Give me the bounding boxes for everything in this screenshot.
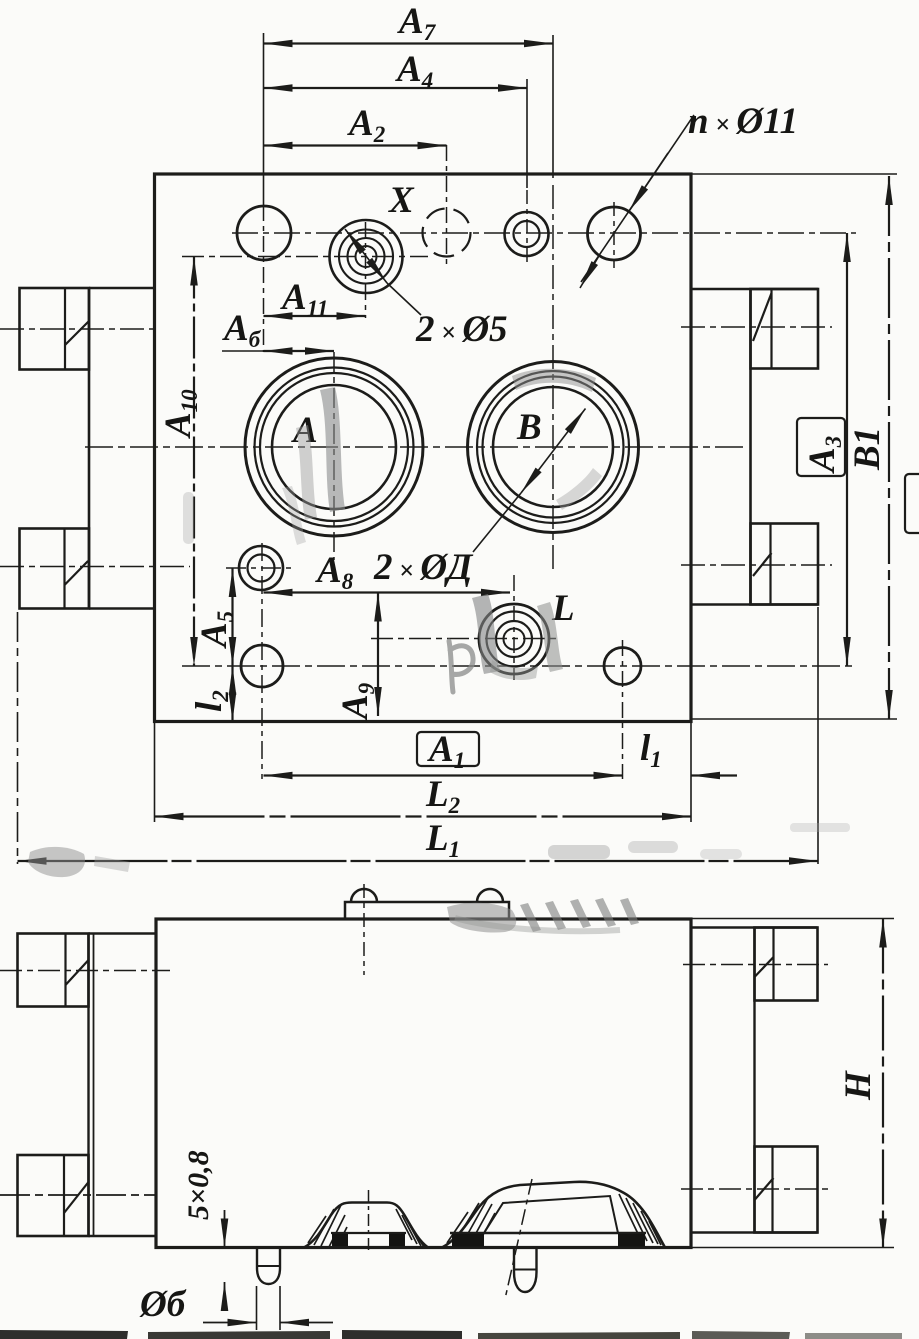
svg-text:n × Ø11: n × Ø11 [688, 101, 798, 142]
svg-text:Н: Н [838, 1070, 879, 1101]
svg-text:В1: В1 [847, 427, 888, 471]
svg-text:X: X [388, 180, 415, 221]
svg-text:В: В [516, 407, 542, 448]
svg-text:Øб: Øб [139, 1284, 187, 1325]
svg-text:2 × ØД: 2 × ØД [373, 547, 474, 588]
svg-text:5×0,8: 5×0,8 [182, 1150, 215, 1220]
